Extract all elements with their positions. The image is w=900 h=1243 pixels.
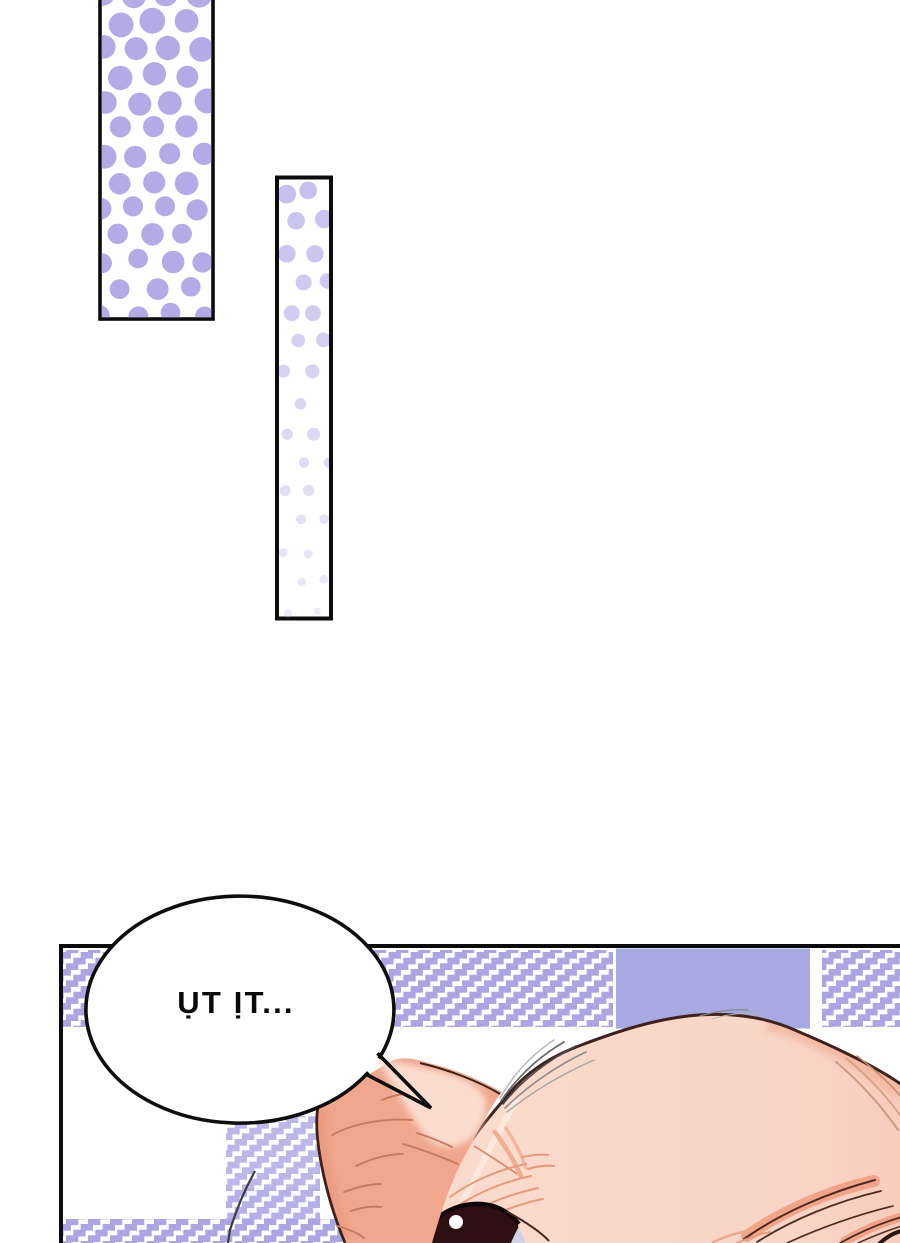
- svg-text:ỤT ỊT...: ỤT ỊT...: [177, 985, 295, 1020]
